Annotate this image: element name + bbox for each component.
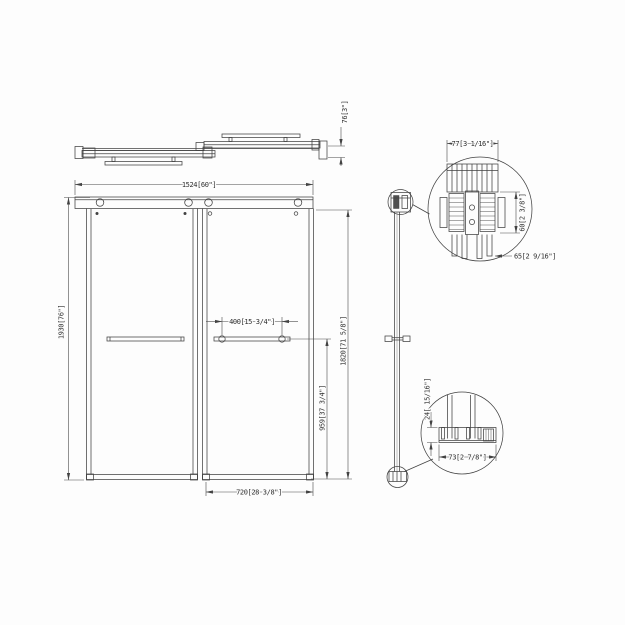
dim-roller-depth-label: 65[2 9/16"]: [514, 253, 556, 261]
mount-screw-hole: [469, 219, 474, 224]
detail-bubble-bottom: [421, 392, 503, 474]
dim-guide-width-label: 73[2 7/8"]: [448, 454, 486, 462]
left-panel-frame: [87, 209, 198, 480]
front-view: [75, 197, 314, 480]
dim-track-depth-label: 76[3"]: [341, 101, 349, 124]
dim-overall-width-label: 1524[60"]: [182, 181, 216, 189]
top-view: [75, 134, 327, 165]
back-door-handle-plan: [222, 134, 300, 138]
dim-glass-height-label: 1820[71 5/8"]: [340, 316, 348, 366]
dim-handle-spacing-label: 400[15 3/4"]: [229, 318, 275, 326]
roller-block-right: [480, 194, 495, 232]
top-track-bar: [75, 197, 313, 209]
side-view: [385, 190, 413, 488]
mount-screw-hole: [469, 205, 474, 210]
detail-callout-circle-bottom: [387, 467, 408, 488]
dim-guide-height-label: 24[ 15/16"]: [424, 378, 432, 420]
handle-knob-side: [403, 336, 410, 342]
technical-drawing: 76[3"] 1524[60"] 1930[76"] 400[15 3/4"] …: [0, 0, 625, 625]
detail-callout-circle-top: [388, 190, 413, 215]
dim-roller-width-label: 77[3 1/16"]: [452, 140, 494, 148]
bottom-guide-side: [389, 472, 407, 482]
handle-knob-side: [385, 336, 392, 342]
drawing-canvas: 76[3"] 1524[60"] 1930[76"] 400[15 3/4"] …: [0, 0, 625, 625]
roller-block-left: [449, 194, 464, 232]
leader-lines: [405, 205, 434, 472]
detail-top-roller: [428, 157, 532, 261]
detail-bottom-guide: [421, 392, 503, 474]
left-panel-handle: [107, 337, 184, 341]
dim-roller-height-label: 60[2 3/8"]: [519, 193, 527, 231]
dim-handle-height-label: 959[37 3/4"]: [319, 385, 327, 431]
dim-panel-width-label: 720[28 3/8"]: [236, 489, 282, 497]
front-door-handle-plan: [105, 162, 182, 166]
right-panel-frame: [203, 209, 314, 480]
dim-overall-height-label: 1930[76"]: [58, 305, 66, 339]
